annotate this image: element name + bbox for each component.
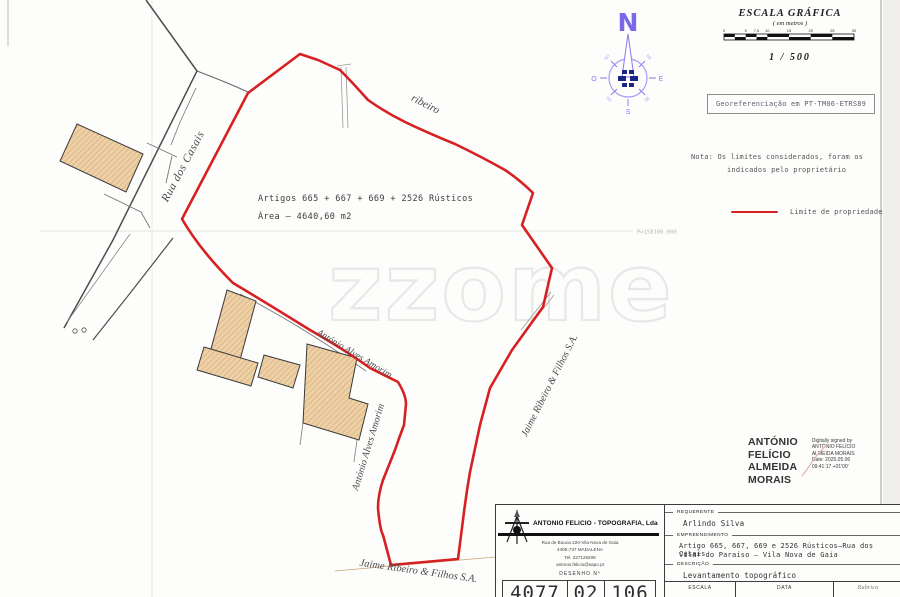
- scale-bar-segments: [724, 34, 854, 40]
- descricao-label: DESCRIÇÃO: [677, 562, 709, 567]
- requerente-header: REQUERENTE: [665, 510, 900, 515]
- compass-east-label: E: [659, 76, 664, 83]
- compass-west-label: O: [591, 76, 597, 83]
- title-block: ANTONIO FELICIO - TOPOGRAFIA, Lda Rua de…: [495, 504, 900, 597]
- empreendimento-label: EMPREENDIMENTO: [677, 533, 728, 538]
- company-address-line: 4405-737 MADALENA: [518, 546, 642, 553]
- scale-tick: 10: [765, 28, 770, 33]
- company-name: ANTONIO FELICIO - TOPOGRAFIA, Lda: [533, 520, 658, 527]
- scale-tick: 7,5: [754, 28, 760, 33]
- watermark-text: zzome: [328, 234, 674, 343]
- scale-tick: 30: [852, 28, 857, 33]
- scale-tick: 0: [723, 28, 726, 33]
- descricao-value: Levantamento topográfico: [683, 571, 796, 580]
- parcel-area-label: Área – 4640,60 m2: [258, 210, 352, 222]
- buildings: [60, 124, 368, 440]
- scale-ratio: 1 / 500: [700, 52, 880, 63]
- rubrica-cell: Rubrica: [833, 582, 900, 597]
- signature-name-line: FELÍCIO: [748, 449, 798, 462]
- topographic-survey-sheet: P=158100.000 zzome: [0, 0, 900, 597]
- drawing-number-part: 02: [567, 581, 604, 597]
- signature-name: ANTÓNIO FELÍCIO ALMEIDA MORAIS: [748, 436, 798, 486]
- building: [211, 290, 256, 360]
- stream-label: ribeiro: [409, 92, 442, 117]
- empreendimento-value-line2: Vilar do Paraíso – Vila Nova de Gaia: [679, 551, 838, 559]
- scale-tick: 5: [745, 28, 748, 33]
- georeferencing-label: Georeferenciação em PT-TM06-ETRS89: [716, 100, 866, 108]
- empreendimento-header: EMPREENDIMENTO: [665, 533, 900, 538]
- drawing-number-label: DESENHO Nº: [496, 571, 664, 577]
- scale-tick-labels: 0 5 7,5 10 15 20 25 30: [723, 28, 857, 33]
- signature-flourish: [798, 440, 832, 480]
- signature-name-line: ANTÓNIO: [748, 436, 798, 449]
- company-address: Rua de Bouca-220-Vila Nova de Gaia 4405-…: [518, 539, 642, 569]
- drawing-number-part: 4077: [503, 581, 567, 597]
- title-block-info-pane: REQUERENTE Arlindo Silva EMPREENDIMENTO …: [664, 505, 900, 597]
- drawing-number-part: 106: [604, 581, 655, 597]
- requerente-value: Arlindo Silva: [683, 519, 744, 528]
- compass-ne-label: NE: [645, 53, 653, 61]
- georeferencing-box: Georeferenciação em PT-TM06-ETRS89: [707, 94, 875, 114]
- drawing-number-box: 4077 02 106: [502, 580, 656, 597]
- company-phone: Tel. 227128208: [518, 554, 642, 561]
- note-line-1: Nota: Os limites considerados, foram os: [691, 151, 896, 164]
- building: [258, 355, 300, 388]
- scale-subtitle: ( em metros ): [700, 20, 880, 27]
- compass-cardinal-labels: O E S: [591, 76, 663, 116]
- requerente-label: REQUERENTE: [677, 510, 714, 515]
- title-block-rule: [498, 533, 659, 536]
- scale-bar-block: ESCALA GRÁFICA ( em metros ) 0 5 7,5 10 …: [700, 8, 880, 63]
- compass-sw-label: SO: [605, 95, 613, 103]
- street-label: Rua dos Casais: [159, 129, 207, 205]
- company-email: antonio.felicio@sapo.pt: [518, 561, 642, 568]
- parcel-articles-label: Artigos 665 + 667 + 669 + 2526 Rústicos: [258, 194, 473, 204]
- title-block-bottom-row: ESCALA DATA Rubrica: [665, 581, 900, 597]
- digital-signature-block: ANTÓNIO FELÍCIO ALMEIDA MORAIS Digitally…: [748, 436, 898, 486]
- graphic-scale-bar: 0 5 7,5 10 15 20 25 30: [720, 27, 860, 43]
- scale-title: ESCALA GRÁFICA: [700, 8, 880, 19]
- legend-boundary-label: Limite de propriedade: [790, 208, 883, 216]
- escala-cell: ESCALA: [665, 582, 735, 597]
- scale-tick: 25: [830, 28, 835, 33]
- signature-name-line: MORAIS: [748, 474, 798, 487]
- parcel-annotation: Artigos 665 + 667 + 669 + 2526 Rústicos …: [258, 194, 473, 222]
- scale-tick: 20: [808, 28, 813, 33]
- scale-tick: 15: [787, 28, 792, 33]
- legend-boundary-swatch: [731, 211, 778, 214]
- descricao-header: DESCRIÇÃO: [665, 562, 900, 567]
- building: [60, 124, 143, 192]
- compass-se-label: SE: [643, 95, 651, 103]
- compass-rose: N O E S NO NE SO SE: [591, 8, 663, 116]
- compass-north-letter: N: [618, 8, 639, 37]
- neighbor-label-jaime-vertical: Jaime Ribeiro & Filhos S.A.: [519, 333, 580, 439]
- company-address-line: Rua de Bouca-220-Vila Nova de Gaia: [518, 539, 642, 546]
- title-block-company-pane: ANTONIO FELICIO - TOPOGRAFIA, Lda Rua de…: [496, 505, 664, 597]
- signature-name-line: ALMEIDA: [748, 461, 798, 474]
- note-block: Nota: Os limites considerados, foram os …: [691, 151, 896, 177]
- note-line-2: indicados pelo proprietário: [691, 164, 896, 177]
- data-cell: DATA: [735, 582, 833, 597]
- compass-south-label: S: [626, 109, 631, 116]
- legend: Limite de propriedade: [731, 208, 883, 216]
- compass-nw-label: NO: [603, 53, 611, 61]
